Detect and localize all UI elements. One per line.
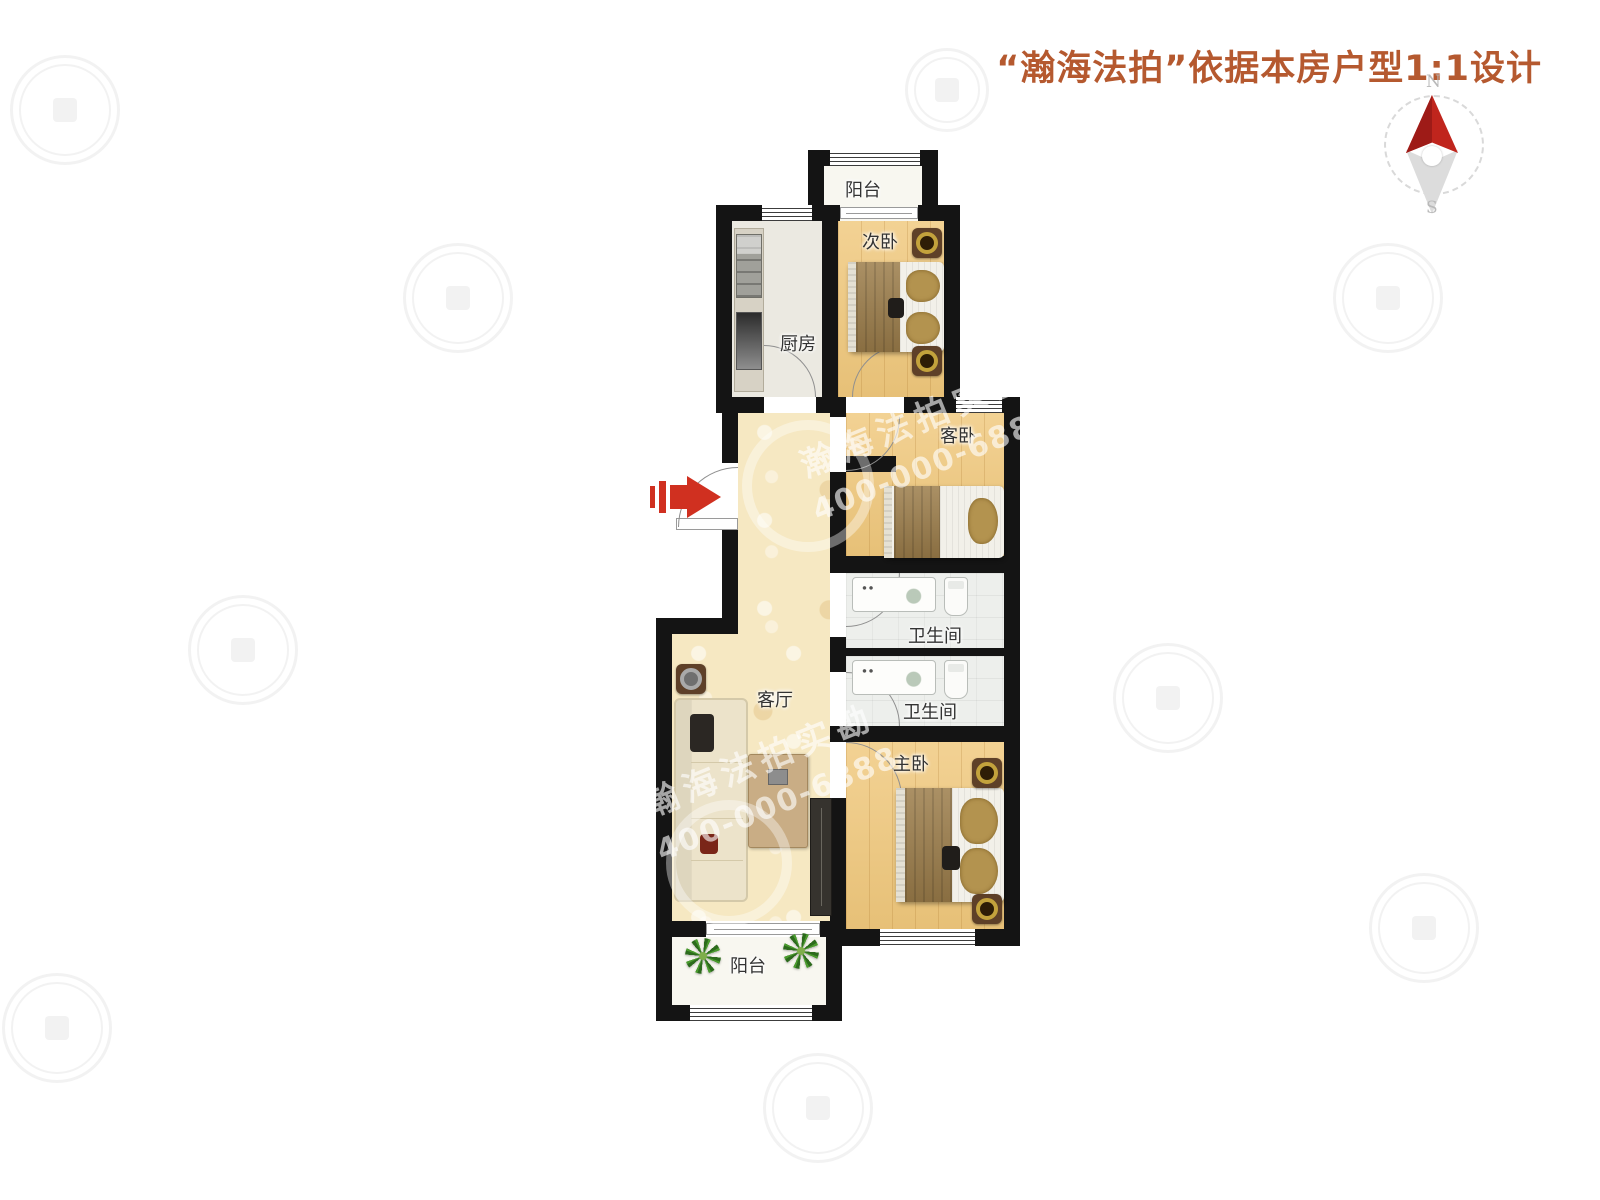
speaker-icon xyxy=(972,758,1002,788)
logo-watermark-badge xyxy=(1369,873,1479,983)
logo-watermark-badge xyxy=(188,595,298,705)
bed-guest-bedroom xyxy=(884,486,1004,558)
compass-hub xyxy=(1422,146,1442,166)
wall xyxy=(656,921,706,937)
wall xyxy=(722,413,738,463)
logo-watermark-badge xyxy=(1113,643,1223,753)
room-label-bathroom-lower: 卫生间 xyxy=(903,698,957,724)
room-label-balcony-top: 阳台 xyxy=(845,176,881,202)
kitchen-door-opening xyxy=(764,397,816,413)
wall xyxy=(846,726,1004,742)
floorplan-page: “瀚海法拍”依据本房户型1:1设计 N S xyxy=(0,0,1600,1200)
wall xyxy=(846,648,1004,656)
watermark-ring xyxy=(742,420,874,552)
wall xyxy=(975,929,1020,946)
compass-south-label: S xyxy=(1426,198,1438,218)
speaker-icon xyxy=(912,228,942,258)
balcony-bottom-window xyxy=(690,1005,812,1021)
wall xyxy=(920,150,938,166)
tv-cabinet xyxy=(810,798,832,916)
bedroom-master-door-opening xyxy=(830,742,846,798)
room-label-kitchen: 厨房 xyxy=(780,330,816,356)
speaker-icon xyxy=(912,346,942,376)
wall xyxy=(830,637,846,672)
bathroom-lower-door-opening xyxy=(830,672,846,726)
logo-watermark-badge xyxy=(1333,243,1443,353)
wall xyxy=(830,798,846,937)
wall xyxy=(904,397,956,413)
bathroom-upper-vanity xyxy=(852,577,936,612)
bed-second-bedroom xyxy=(848,262,944,352)
kitchen-window xyxy=(762,205,812,221)
wall xyxy=(830,726,846,742)
wall xyxy=(1004,397,1020,946)
room-label-bathroom-upper: 卫生间 xyxy=(908,622,962,648)
bathroom-upper-door-opening xyxy=(830,573,846,637)
speaker-icon xyxy=(972,894,1002,924)
logo-watermark-badge xyxy=(905,48,989,132)
balcony-slider-door xyxy=(840,207,918,219)
wall xyxy=(830,397,846,417)
wall xyxy=(808,150,830,166)
plant-icon xyxy=(783,933,819,969)
room-label-balcony-bottom: 阳台 xyxy=(730,952,766,978)
wall xyxy=(944,205,960,413)
bathroom-lower-vanity xyxy=(852,660,936,695)
speaker-icon xyxy=(676,664,706,694)
wall xyxy=(846,556,1004,573)
plant-icon xyxy=(685,938,721,974)
room-label-bedroom-guest: 客卧 xyxy=(940,422,976,448)
bedroom-guest-window xyxy=(956,397,1002,413)
room-label-bedroom-second: 次卧 xyxy=(862,228,898,254)
bathroom-upper-toilet xyxy=(944,577,968,616)
window xyxy=(830,150,920,166)
entrance-arrow-icon xyxy=(650,476,722,518)
wall xyxy=(812,1005,842,1021)
logo-watermark-badge xyxy=(10,55,120,165)
compass-north-label: N xyxy=(1426,72,1441,92)
logo-watermark-badge xyxy=(763,1053,873,1163)
bathroom-lower-toilet xyxy=(944,660,968,699)
bed-master-bedroom xyxy=(896,788,1004,902)
bedroom-second-door-opening xyxy=(844,397,904,413)
logo-watermark-badge xyxy=(2,973,112,1083)
logo-watermark-badge xyxy=(403,243,513,353)
wall xyxy=(656,618,672,1021)
bedroom-master-window xyxy=(880,929,975,946)
wall xyxy=(656,1005,690,1021)
wall xyxy=(812,205,840,221)
room-label-bedroom-master: 主卧 xyxy=(893,750,929,776)
kitchen-stove xyxy=(736,312,762,370)
wall xyxy=(716,205,732,413)
page-title: “瀚海法拍”依据本房户型1:1设计 xyxy=(996,40,1542,91)
watermark-ring xyxy=(666,800,792,926)
room-label-living-room: 客厅 xyxy=(757,686,793,712)
wall xyxy=(822,221,838,397)
wall xyxy=(716,397,764,413)
kitchen-sink xyxy=(736,234,762,298)
